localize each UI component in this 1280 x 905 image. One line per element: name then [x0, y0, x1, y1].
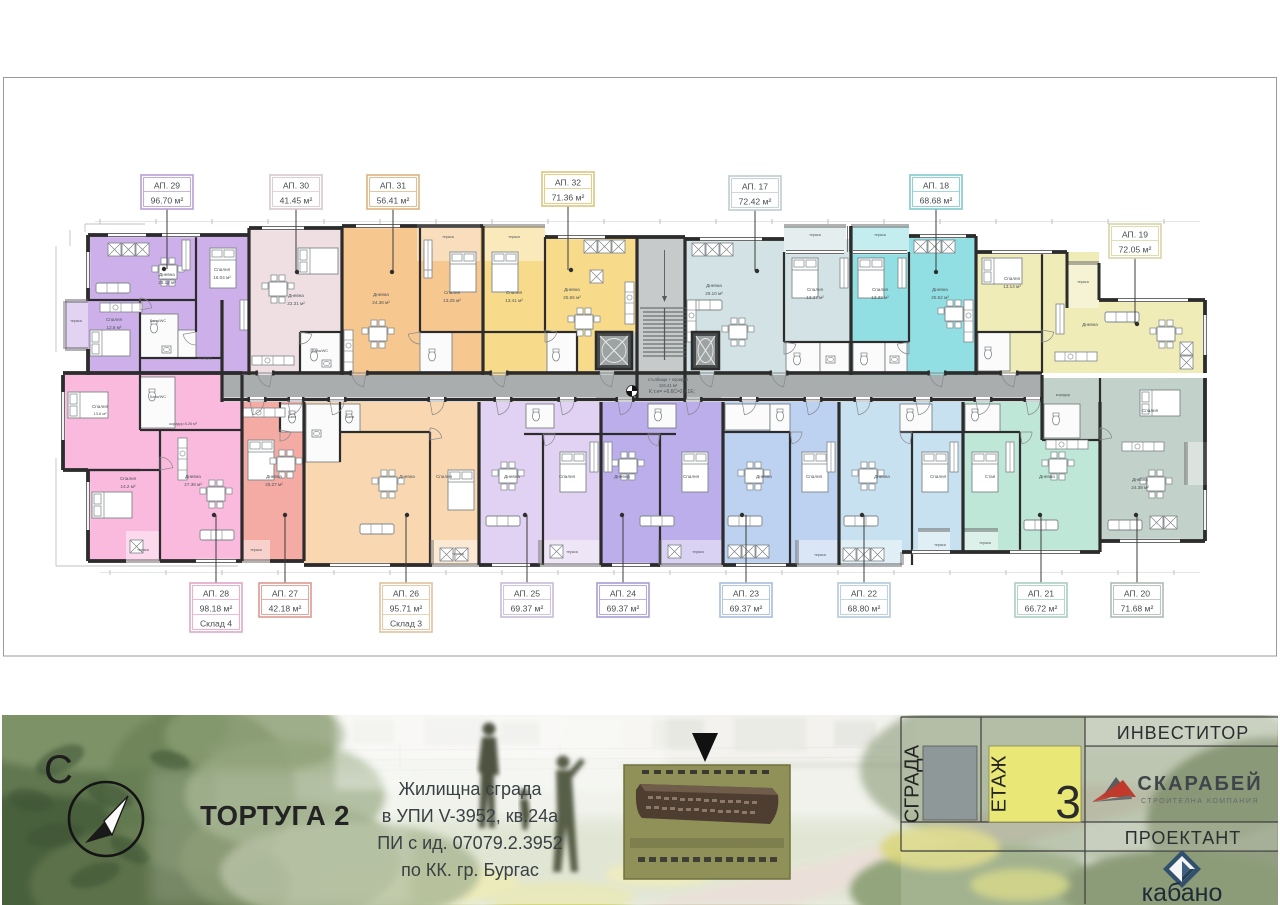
svg-text:104.41 м²: 104.41 м²: [659, 383, 678, 388]
svg-text:тераса: тераса: [874, 233, 885, 237]
svg-text:42.18 м²: 42.18 м²: [269, 603, 302, 613]
svg-text:АП. 20: АП. 20: [1124, 588, 1150, 598]
svg-text:АП. 28: АП. 28: [203, 588, 229, 598]
svg-text:Дневна: Дневна: [1132, 477, 1148, 482]
svg-text:в УПИ V-3952, кв.24а: в УПИ V-3952, кв.24а: [382, 806, 559, 826]
svg-text:СТРОИТЕЛНА КОМПАНИЯ: СТРОИТЕЛНА КОМПАНИЯ: [1141, 798, 1259, 805]
svg-text:АП. 22: АП. 22: [851, 588, 877, 598]
svg-text:тераса: тераса: [814, 553, 825, 557]
svg-text:Спалня: Спалня: [214, 267, 231, 272]
svg-text:12.8 м²: 12.8 м²: [107, 325, 122, 330]
svg-text:Спалня: Спалня: [807, 287, 824, 292]
svg-text:Жилищна сграда: Жилищна сграда: [398, 779, 542, 799]
svg-text:Спалня: Спалня: [106, 317, 123, 322]
svg-text:Дневна: Дневна: [266, 474, 282, 479]
svg-text:АП. 29: АП. 29: [154, 180, 180, 190]
svg-text:Дневна: Дневна: [504, 474, 520, 479]
svg-text:Склад 3: Склад 3: [390, 618, 422, 628]
svg-text:Дневна: Дневна: [288, 293, 304, 298]
svg-text:АП. 21: АП. 21: [1028, 588, 1054, 598]
svg-text:ПИ с ид. 07079.2.3952: ПИ с ид. 07079.2.3952: [377, 833, 563, 853]
svg-text:Спалня: Спалня: [930, 474, 947, 479]
svg-text:тераса: тераса: [934, 543, 945, 547]
svg-text:25.12 м²: 25.12 м²: [158, 280, 176, 285]
svg-text:тераса: тераса: [566, 550, 577, 554]
svg-text:АП. 27: АП. 27: [272, 588, 298, 598]
svg-text:Спалня: Спалня: [444, 290, 461, 295]
svg-text:Спалня: Спалня: [120, 476, 137, 481]
svg-text:С: С: [44, 748, 73, 792]
svg-text:Дневна: Дневна: [1039, 474, 1055, 479]
svg-text:тераса: тераса: [452, 552, 463, 556]
svg-text:56.41 м²: 56.41 м²: [377, 195, 410, 205]
svg-text:24.38 м²: 24.38 м²: [1131, 485, 1149, 490]
svg-text:Дневна: Дневна: [159, 272, 175, 277]
svg-text:АП. 32: АП. 32: [555, 177, 581, 187]
svg-text:22.31 м²: 22.31 м²: [287, 301, 305, 306]
svg-text:69.37 м²: 69.37 м²: [730, 603, 763, 613]
svg-text:25.27 м²: 25.27 м²: [265, 482, 283, 487]
svg-text:Дневна: Дневна: [373, 292, 389, 297]
svg-text:ПРОЕКТАНТ: ПРОЕКТАНТ: [1125, 828, 1241, 848]
svg-text:13.41 м²: 13.41 м²: [505, 298, 523, 303]
svg-text:14.2 м²: 14.2 м²: [121, 484, 136, 489]
svg-text:АП. 23: АП. 23: [733, 588, 759, 598]
svg-text:коридор: коридор: [198, 356, 213, 360]
svg-text:13.25 м²: 13.25 м²: [443, 298, 461, 303]
svg-text:тераса: тераса: [442, 235, 453, 239]
svg-text:24.36 м²: 24.36 м²: [372, 300, 390, 305]
svg-text:Дневна: Дневна: [756, 474, 772, 479]
svg-text:АП. 30: АП. 30: [283, 180, 309, 190]
svg-text:95.71 м²: 95.71 м²: [390, 603, 423, 613]
svg-text:Баня: Баня: [288, 415, 296, 419]
svg-text:29.10 м²: 29.10 м²: [705, 291, 723, 296]
svg-text:69.37 м²: 69.37 м²: [607, 603, 640, 613]
svg-text:Спалня: Спалня: [1004, 276, 1021, 281]
svg-text:Дневна: Дневна: [932, 287, 948, 292]
svg-text:коридор: коридор: [1056, 393, 1071, 397]
svg-text:АП. 24: АП. 24: [610, 588, 636, 598]
svg-text:69.37 м²: 69.37 м²: [511, 603, 544, 613]
svg-text:стълбище + коридор: стълбище + коридор: [648, 377, 689, 382]
svg-text:СГРАДА: СГРАДА: [901, 744, 923, 823]
svg-text:кабано: кабано: [1142, 879, 1223, 905]
svg-text:тераса: тераса: [979, 541, 990, 545]
svg-text:по КК. гр. Бургас: по КК. гр. Бургас: [401, 860, 539, 880]
svg-text:Баня/WC: Баня/WC: [150, 319, 166, 323]
svg-text:Дневна: Дневна: [564, 287, 580, 292]
svg-text:13.32 м²: 13.32 м²: [871, 295, 889, 300]
svg-text:25.52 м²: 25.52 м²: [931, 295, 949, 300]
svg-text:Дневна: Дневна: [874, 474, 890, 479]
svg-text:АП. 17: АП. 17: [742, 181, 768, 191]
svg-text:Баня: Баня: [346, 415, 354, 419]
svg-text:Спалня: Спалня: [506, 290, 523, 295]
svg-text:Спалня: Спалня: [806, 474, 823, 479]
svg-text:72.05 м²: 72.05 м²: [1119, 244, 1152, 254]
svg-text:тераса: тераса: [1077, 280, 1088, 284]
svg-text:Склад 4: Склад 4: [200, 618, 232, 628]
svg-text:СКАРАБЕЙ: СКАРАБЕЙ: [1137, 771, 1262, 795]
svg-text:16.04 м²: 16.04 м²: [213, 275, 231, 280]
svg-text:Дневна: Дневна: [185, 474, 201, 479]
svg-text:25.55 м²: 25.55 м²: [563, 295, 581, 300]
svg-text:Баня/WC: Баня/WC: [312, 349, 328, 353]
svg-text:13.37 м²: 13.37 м²: [806, 295, 824, 300]
svg-text:Стая: Стая: [985, 474, 996, 479]
svg-text:Дневна: Дневна: [1082, 322, 1098, 327]
svg-text:27.36 м²: 27.36 м²: [184, 482, 202, 487]
svg-text:71.68 м²: 71.68 м²: [1121, 603, 1154, 613]
svg-text:ИНВЕСТИТОР: ИНВЕСТИТОР: [1117, 723, 1249, 743]
svg-text:66.72 м²: 66.72 м²: [1025, 603, 1058, 613]
svg-text:Спалня: Спалня: [872, 287, 889, 292]
svg-text:41.45 м²: 41.45 м²: [280, 195, 313, 205]
svg-text:Баня/WC: Баня/WC: [150, 395, 166, 399]
svg-text:тераса: тераса: [692, 550, 703, 554]
svg-text:Дневна: Дневна: [706, 283, 722, 288]
svg-text:71.36 м²: 71.36 м²: [552, 192, 585, 202]
svg-text:Спалня: Спалня: [92, 404, 109, 409]
svg-text:тераса: тераса: [137, 548, 148, 552]
svg-text:К.т.н= +6.6С=2В.1Е;: К.т.н= +6.6С=2В.1Е;: [649, 389, 695, 395]
svg-text:13.14 м²: 13.14 м²: [1003, 284, 1021, 289]
svg-text:68.80 м²: 68.80 м²: [848, 603, 881, 613]
svg-text:тераса: тераса: [508, 235, 519, 239]
svg-text:Спалня: Спалня: [436, 474, 453, 479]
svg-text:68.68 м²: 68.68 м²: [920, 195, 953, 205]
svg-text:Спалня: Спалня: [683, 474, 700, 479]
svg-text:ЕТАЖ: ЕТАЖ: [988, 755, 1010, 812]
svg-text:13.6 м²: 13.6 м²: [94, 411, 108, 416]
svg-text:АП. 25: АП. 25: [514, 588, 540, 598]
svg-text:тераса: тераса: [250, 548, 261, 552]
svg-text:АП. 31: АП. 31: [380, 180, 406, 190]
svg-text:тераса: тераса: [70, 319, 81, 323]
svg-text:АП. 19: АП. 19: [1122, 229, 1148, 239]
svg-text:АП. 18: АП. 18: [923, 180, 949, 190]
svg-text:ТОРТУГА 2: ТОРТУГА 2: [200, 800, 350, 831]
svg-text:98.18 м²: 98.18 м²: [200, 603, 233, 613]
svg-text:96.70 м²: 96.70 м²: [151, 195, 184, 205]
svg-text:АП. 26: АП. 26: [393, 588, 419, 598]
svg-text:Спалня: Спалня: [1142, 408, 1159, 413]
svg-text:72.42 м²: 72.42 м²: [739, 196, 772, 206]
svg-text:3: 3: [1055, 776, 1081, 828]
svg-text:Спалня: Спалня: [559, 474, 576, 479]
svg-text:тераса: тераса: [809, 233, 820, 237]
svg-text:Дневна: Дневна: [399, 474, 415, 479]
svg-text:коридор 8.26 м²: коридор 8.26 м²: [169, 422, 198, 426]
svg-text:Дневна: Дневна: [614, 474, 630, 479]
